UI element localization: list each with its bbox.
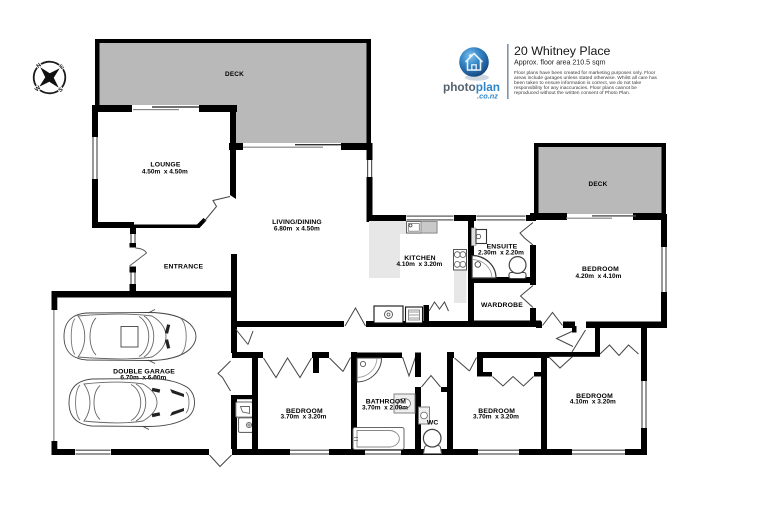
svg-text:.co.nz: .co.nz [477,92,498,101]
svg-text:6.80m x 4.50m: 6.80m x 4.50m [274,225,320,232]
svg-text:Approx. floor area 210.5 sqm: Approx. floor area 210.5 sqm [514,59,606,67]
svg-text:3.70m x 3.20m: 3.70m x 3.20m [281,414,327,421]
svg-text:4.50m x 4.50m: 4.50m x 4.50m [142,168,188,175]
svg-text:4.10m x 3.20m: 4.10m x 3.20m [396,261,442,268]
svg-text:20 Whitney Place: 20 Whitney Place [514,44,611,58]
svg-text:2.30m x 2.20m: 2.30m x 2.20m [478,250,524,257]
svg-text:WARDROBE: WARDROBE [481,302,523,309]
svg-text:BEDROOM: BEDROOM [582,266,619,273]
svg-text:ENTRANCE: ENTRANCE [164,264,204,271]
svg-text:3.70m x 3.20m: 3.70m x 3.20m [473,414,519,421]
svg-text:4.20m x 4.10m: 4.20m x 4.10m [576,273,622,280]
svg-text:reproduced without the written: reproduced without the written consent o… [514,90,630,96]
svg-text:6.70m x 6.00m: 6.70m x 6.00m [120,375,166,382]
svg-text:3.70m x 2.00m: 3.70m x 2.00m [362,405,408,412]
svg-text:4.10m x 3.20m: 4.10m x 3.20m [570,399,616,406]
svg-text:WC: WC [427,420,439,427]
svg-text:DECK: DECK [225,71,244,78]
svg-text:DECK: DECK [589,181,608,188]
